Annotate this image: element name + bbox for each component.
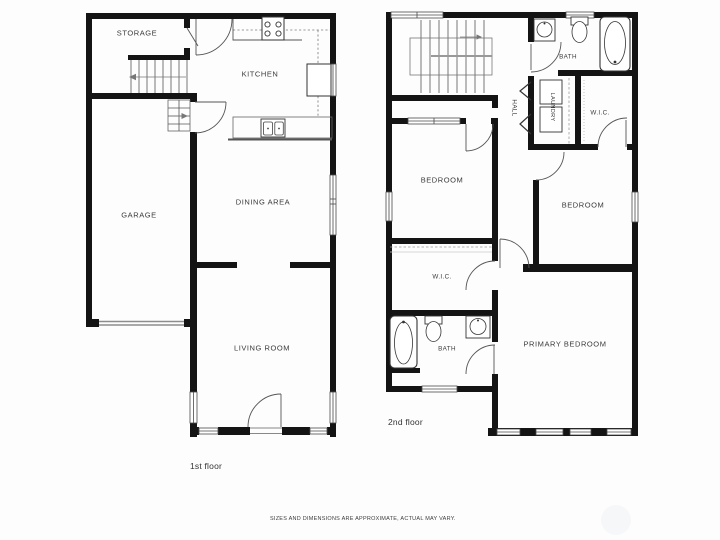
living-bottom-window-left [199, 428, 218, 434]
first-floor-walls [86, 13, 336, 437]
sink [534, 19, 555, 41]
first-floor-doors [187, 19, 282, 434]
living-bottom-window-right [310, 428, 327, 434]
bathtub [390, 316, 417, 368]
bedroom-right-door [536, 152, 564, 180]
room-label-wic-top: W.I.C. [590, 110, 609, 117]
bathtub [600, 17, 630, 71]
room-label-dining-area: DINING AREA [236, 198, 290, 207]
fridge [307, 64, 331, 96]
bath-top-fixtures [534, 17, 630, 71]
primary-bedroom-door [500, 239, 529, 268]
kitchen-entry-door [196, 19, 232, 55]
room-label-garage: GARAGE [121, 211, 156, 220]
room-label-storage: STORAGE [117, 29, 157, 38]
room-label-laundry: LAUNDRY [549, 93, 555, 122]
bath-top-door [531, 42, 561, 72]
room-label-wic-mid: W.I.C. [432, 274, 451, 281]
garage-door [99, 322, 184, 326]
bedroom-right-side-window [632, 192, 638, 222]
room-label-bath-bottom: BATH [438, 346, 456, 353]
stove [262, 17, 284, 40]
wic-top-door [598, 118, 627, 147]
floor2-caption: 2nd floor [388, 417, 423, 427]
bath-bottom-fixtures [390, 316, 490, 368]
bedroom-left-door [466, 124, 493, 151]
first-floor-plan [86, 13, 336, 437]
room-label-living-room: LIVING ROOM [234, 344, 290, 353]
room-label-bath-top: BATH [559, 54, 577, 61]
living-right-window [330, 392, 336, 423]
sink [466, 316, 490, 338]
bath-bottom-window [422, 386, 457, 392]
bath-bottom-door [466, 345, 495, 374]
second-floor-plan [386, 12, 638, 436]
second-floor-stairs [410, 20, 492, 93]
dining-window [330, 175, 336, 235]
toilet [425, 316, 442, 342]
bedroom-left-side-window [386, 192, 392, 221]
floorplan-page: STORAGE KITCHEN GARAGE DINING AREA LIVIN… [0, 0, 720, 540]
toilet [571, 17, 588, 43]
room-label-kitchen: KITCHEN [242, 70, 279, 79]
stair-hall-door [195, 102, 226, 133]
floorplan-canvas [0, 0, 720, 540]
watermark-logo [601, 505, 631, 535]
second-floor-walls [386, 12, 638, 436]
wic-mid-door [466, 261, 495, 290]
living-left-window [190, 392, 197, 423]
room-label-bedroom-left: BEDROOM [421, 176, 464, 185]
room-label-bedroom-right: BEDROOM [562, 201, 605, 210]
floor1-caption: 1st floor [190, 461, 222, 471]
stairs-top-window [391, 12, 443, 18]
room-label-primary-bedroom: PRIMARY BEDROOM [524, 340, 607, 349]
bedroom-left-top-window [408, 118, 460, 124]
footer-disclaimer: SIZES AND DIMENSIONS ARE APPROXIMATE, AC… [270, 516, 456, 522]
kitchen-sink-counter [228, 117, 332, 140]
front-door [248, 394, 282, 434]
room-label-hall: HALL [511, 99, 518, 116]
